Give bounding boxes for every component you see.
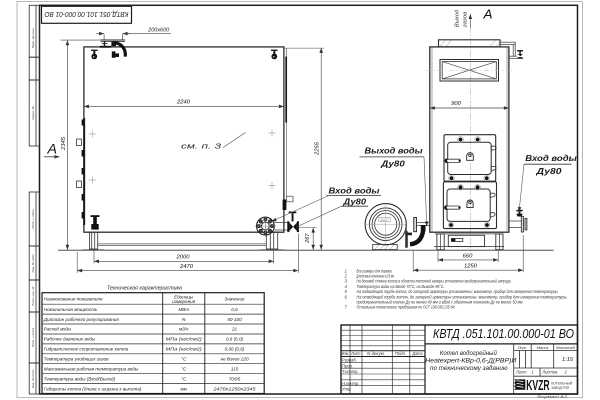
svg-text:Расход воды: Расход воды <box>44 327 72 332</box>
svg-text:2470: 2470 <box>179 264 194 270</box>
svg-text:Ду80: Ду80 <box>342 196 366 206</box>
svg-text:Взам. инв. №: Взам. инв. № <box>31 286 35 306</box>
svg-text:А: А <box>482 6 492 21</box>
svg-text:%: % <box>182 317 186 322</box>
svg-text:Вход воды: Вход воды <box>329 185 381 195</box>
svg-text:1: 1 <box>532 370 534 375</box>
svg-text:Наименование показателя: Наименование показателя <box>44 297 103 302</box>
svg-text:КВТД .051.101.00.000-01 ВО: КВТД .051.101.00.000-01 ВО <box>433 327 574 341</box>
svg-text:Справ. №: Справ. № <box>31 105 35 120</box>
svg-text:0,6: 0,6 <box>231 307 238 312</box>
svg-text:м3/ч: м3/ч <box>179 327 189 332</box>
svg-text:Номинальная мощность: Номинальная мощность <box>44 307 98 312</box>
svg-text:2470х1250х2345: 2470х1250х2345 <box>212 386 256 391</box>
svg-text:2240: 2240 <box>176 100 191 106</box>
svg-text:0,06 (0,6): 0,06 (0,6) <box>225 347 245 352</box>
svg-text:Инв. № подл.: Инв. № подл. <box>31 369 35 388</box>
svg-text:Масштаб: Масштаб <box>556 345 575 350</box>
svg-text:Дата: Дата <box>412 351 424 356</box>
svg-text:измерения: измерения <box>172 299 196 304</box>
svg-text:Пров.: Пров. <box>342 363 353 368</box>
svg-text:KVZR: KVZR <box>526 378 550 394</box>
svg-text:Котел водогрейный: Котел водогрейный <box>440 349 497 357</box>
svg-text:Heatexpert-КВр-0,6-Д(РВР)И: Heatexpert-КВр-0,6-Д(РВР)И <box>425 358 516 365</box>
svg-text:Н.контр.: Н.контр. <box>342 381 359 386</box>
svg-text:Формат А3: Формат А3 <box>537 394 568 399</box>
svg-text:газов: газов <box>463 11 469 27</box>
svg-text:1:15: 1:15 <box>562 357 574 363</box>
svg-text:2345: 2345 <box>61 136 67 151</box>
svg-text:см. п. 3: см. п. 3 <box>181 142 222 151</box>
svg-text:Ду80: Ду80 <box>535 166 561 176</box>
svg-text:Температура воды (Вход/Выход): Температура воды (Вход/Выход) <box>44 376 116 381</box>
svg-text:не более 220: не более 220 <box>220 357 248 362</box>
svg-text:Ду80: Ду80 <box>380 159 405 169</box>
svg-text:по техническому заданию: по техническому заданию <box>430 364 508 372</box>
svg-text:50-100: 50-100 <box>227 317 242 322</box>
svg-text:Техническая характеристика: Техническая характеристика <box>107 286 182 292</box>
svg-text:Остальные технические требован: Остальные технические требования по ОСТ … <box>357 305 456 310</box>
svg-text:70/95: 70/95 <box>229 376 241 381</box>
svg-text:мм: мм <box>181 386 188 391</box>
svg-text:Подп. и дата: Подп. и дата <box>31 209 35 229</box>
svg-text:0,6 (6,0): 0,6 (6,0) <box>226 337 244 342</box>
svg-text:Масса: Масса <box>537 345 550 350</box>
svg-text:Изм.: Изм. <box>342 351 350 356</box>
svg-text:Диапазон рабочего регулировани: Диапазон рабочего регулирования <box>43 317 120 322</box>
svg-text:267: 267 <box>305 233 311 244</box>
svg-text:900: 900 <box>451 101 461 107</box>
svg-text:2255: 2255 <box>315 141 321 156</box>
svg-text:1250: 1250 <box>464 264 478 270</box>
svg-text:Перв. примен.: Перв. примен. <box>31 28 35 49</box>
svg-text:Вход воды: Вход воды <box>525 153 577 163</box>
svg-text:ЗАВОД РЭП: ЗАВОД РЭП <box>551 386 569 390</box>
svg-text:21: 21 <box>231 327 238 332</box>
svg-text:Выход: Выход <box>454 9 460 27</box>
svg-text:2000: 2000 <box>176 254 191 260</box>
svg-text:200х600: 200х600 <box>147 28 169 34</box>
svg-text:N докум.: N докум. <box>367 351 385 356</box>
svg-text:115: 115 <box>231 367 239 372</box>
svg-text:Т.контр.: Т.контр. <box>342 369 359 374</box>
svg-text:МПа (кгс/см2): МПа (кгс/см2) <box>166 337 203 342</box>
svg-text:°С: °С <box>181 367 187 372</box>
svg-text:°С: °С <box>181 357 187 362</box>
svg-text:МВт: МВт <box>178 307 189 312</box>
svg-text:Значение: Значение <box>224 297 245 302</box>
svg-text:Лист: Лист <box>350 351 361 356</box>
svg-text:°С: °С <box>181 376 187 381</box>
svg-text:МПа (кгс/см2): МПа (кгс/см2) <box>166 347 203 352</box>
svg-text:Инв. № дубл.: Инв. № дубл. <box>31 253 35 272</box>
svg-text:Максимальная рабочая температу: Максимальная рабочая температура воды <box>44 367 139 372</box>
svg-text:Габариты котла (длина х ширина: Габариты котла (длина х ширина х высота) <box>44 386 142 391</box>
svg-text:Подп.: Подп. <box>395 351 406 356</box>
svg-text:Лит.: Лит. <box>517 345 527 350</box>
svg-text:Выход воды: Выход воды <box>365 145 424 155</box>
svg-text:Подп. и дата: Подп. и дата <box>31 328 35 348</box>
svg-text:Разраб.: Разраб. <box>342 357 357 362</box>
svg-text:КВТД.051.101.00.000-01 ВО: КВТД.051.101.00.000-01 ВО <box>44 10 128 19</box>
svg-text:Гидравлическое сопротивление к: Гидравлическое сопротивление котла <box>44 347 129 352</box>
svg-text:Утв.: Утв. <box>342 387 351 392</box>
svg-text:КОТЕЛЬНЫЙ: КОТЕЛЬНЫЙ <box>551 381 572 385</box>
svg-text:660: 660 <box>463 253 473 259</box>
svg-text:Рабочее давление воды: Рабочее давление воды <box>44 337 96 342</box>
svg-text:Листов: Листов <box>541 370 558 375</box>
svg-text:Температура уходящих газов: Температура уходящих газов <box>44 357 109 362</box>
svg-text:Лист: Лист <box>515 370 527 375</box>
svg-text:А: А <box>46 142 57 157</box>
